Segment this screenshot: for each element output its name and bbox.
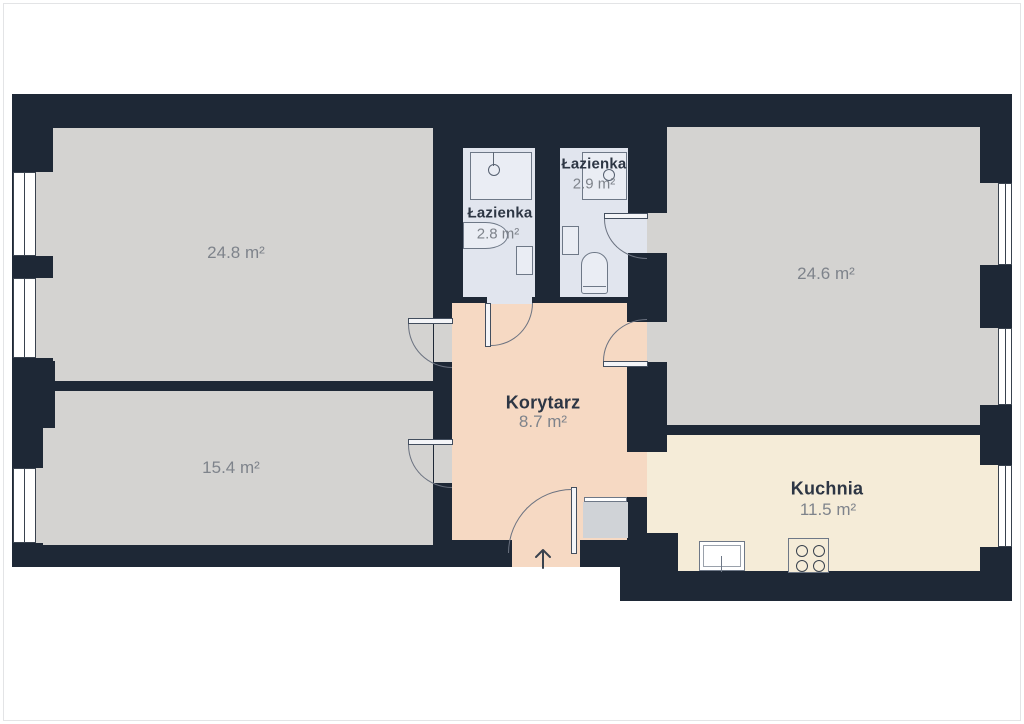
room-name-label: Kuchnia (791, 479, 863, 500)
window-icon (13, 468, 36, 543)
window-sill (980, 328, 998, 405)
door-leaf-room-24-6 (603, 361, 648, 367)
window-icon (13, 172, 36, 256)
room-area-label: 2.8 m² (477, 226, 520, 243)
shower-drain-icon (488, 164, 500, 176)
kitchen-floor-passage (647, 452, 678, 533)
shower-icon (470, 152, 532, 200)
kitchen-wall-step (646, 533, 678, 601)
room-name-label: Łazienka (562, 156, 627, 173)
left-wall-pier (12, 361, 55, 428)
room-area-label: 8.7 m² (519, 412, 567, 432)
sink-icon (562, 226, 579, 255)
entrance-arrow-icon (533, 547, 553, 569)
room-name-label: Korytarz (506, 393, 581, 414)
window-sill (36, 172, 53, 256)
room-area-label: 11.5 m² (800, 500, 856, 520)
window-icon (998, 183, 1012, 265)
room-area-label: 24.6 m² (797, 264, 855, 284)
window-sill (980, 183, 998, 265)
stove-hob-icon (788, 538, 829, 573)
toilet-icon (581, 252, 608, 294)
floor-plan: 24.8 m² 15.4 m² 24.6 m² Kuchnia 11.5 m² … (0, 0, 1024, 724)
room-area-label: 24.8 m² (207, 243, 265, 263)
room-name-label: Łazienka (468, 205, 533, 222)
window-icon (998, 465, 1012, 547)
radiator-icon (516, 246, 533, 275)
window-icon (13, 278, 36, 358)
opening-room-24-6 (647, 322, 667, 362)
window-sill (980, 465, 998, 547)
window-sill (36, 278, 53, 358)
window-sill (36, 468, 53, 543)
landing-threshold (584, 497, 627, 502)
room-area-label: 15.4 m² (202, 458, 260, 478)
room-area-label: 2.9 m² (573, 176, 616, 193)
entrance-landing (583, 502, 628, 538)
opening-bathroom-2-outer (647, 213, 667, 253)
window-icon (998, 328, 1012, 405)
kitchen-sink-icon (699, 541, 745, 571)
corridor-kitchen-passage (627, 452, 647, 497)
